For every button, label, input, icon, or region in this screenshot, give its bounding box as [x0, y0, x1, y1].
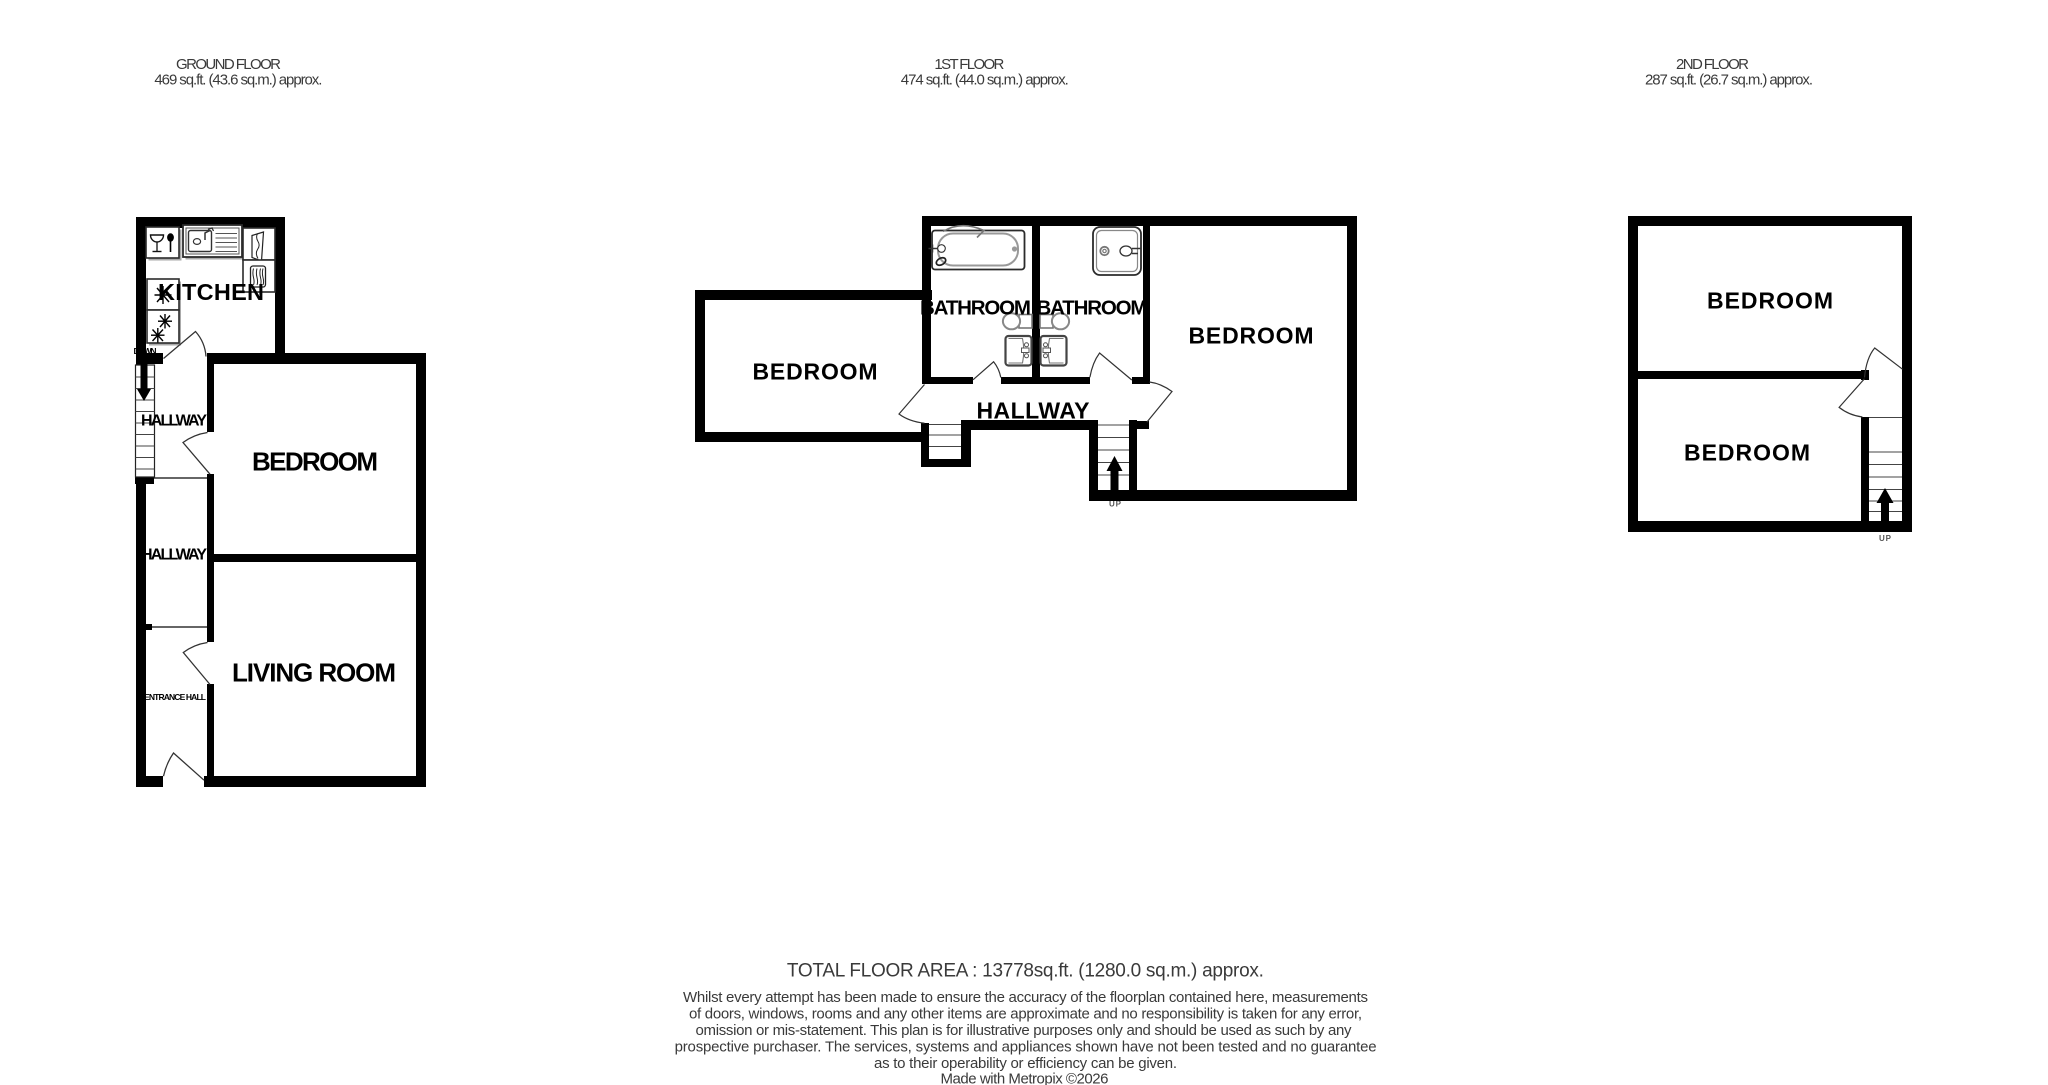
- svg-text:BEDROOM: BEDROOM: [1189, 323, 1314, 349]
- svg-text:UP: UP: [1879, 534, 1892, 543]
- svg-text:KITCHEN: KITCHEN: [158, 279, 264, 305]
- svg-text:BEDROOM: BEDROOM: [1684, 439, 1810, 465]
- svg-text:BEDROOM: BEDROOM: [753, 359, 878, 385]
- svg-text:HALLWAY: HALLWAY: [141, 547, 207, 564]
- svg-text:Whilst every attempt has been: Whilst every attempt has been made to en…: [683, 989, 1368, 1006]
- svg-text:BATHROOM: BATHROOM: [920, 297, 1031, 320]
- svg-text:of doors, windows, rooms and a: of doors, windows, rooms and any other i…: [689, 1006, 1362, 1023]
- svg-text:469 sq.ft. (43.6 sq.m.) approx: 469 sq.ft. (43.6 sq.m.) approx.: [154, 71, 322, 88]
- svg-text:TOTAL FLOOR AREA : 13778sq.ft.: TOTAL FLOOR AREA : 13778sq.ft. (1280.0 s…: [787, 961, 1264, 982]
- svg-text:287 sq.ft. (26.7 sq.m.) approx: 287 sq.ft. (26.7 sq.m.) approx.: [1645, 71, 1813, 88]
- svg-text:474 sq.ft. (44.0 sq.m.) approx: 474 sq.ft. (44.0 sq.m.) approx.: [901, 71, 1069, 88]
- svg-text:Made with Metropix ©2026: Made with Metropix ©2026: [941, 1071, 1109, 1085]
- svg-text:HALLWAY: HALLWAY: [141, 413, 207, 430]
- svg-text:BATHROOM: BATHROOM: [1037, 297, 1148, 320]
- svg-text:BEDROOM: BEDROOM: [1707, 287, 1833, 313]
- svg-text:LIVING ROOM: LIVING ROOM: [232, 658, 396, 688]
- svg-text:BEDROOM: BEDROOM: [252, 447, 378, 477]
- svg-text:omission or mis-statement. Thi: omission or mis-statement. This plan is …: [696, 1022, 1353, 1039]
- svg-text:HALLWAY: HALLWAY: [977, 398, 1090, 424]
- svg-text:as to their operability or eff: as to their operability or efficiency ca…: [874, 1055, 1177, 1072]
- svg-text:prospective purchaser. The ser: prospective purchaser. The services, sys…: [675, 1039, 1377, 1056]
- svg-text:ENTRANCE HALL: ENTRANCE HALL: [144, 692, 206, 702]
